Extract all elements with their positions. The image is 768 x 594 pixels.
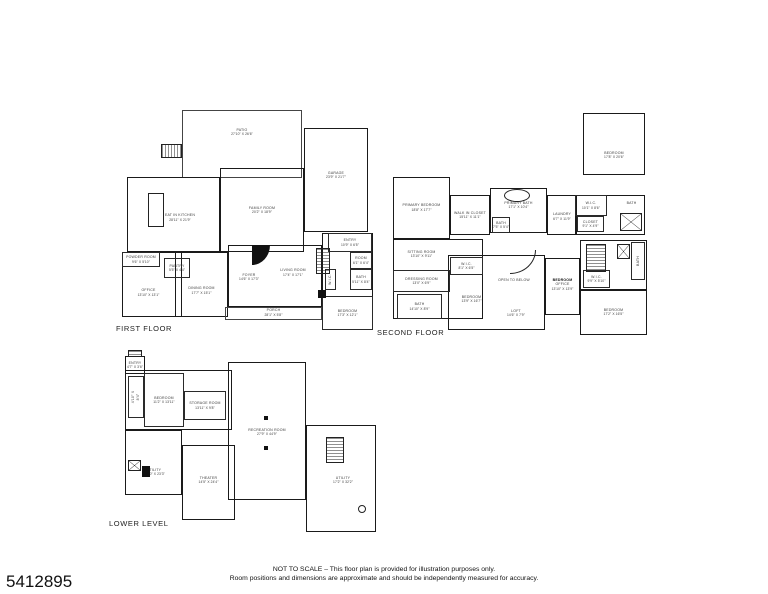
column-marker bbox=[264, 446, 268, 450]
hatch-marker bbox=[586, 244, 606, 272]
room-bath bbox=[350, 269, 372, 290]
building-outline bbox=[580, 290, 647, 335]
box-marker bbox=[148, 193, 164, 227]
building-outline bbox=[393, 177, 450, 239]
building-outline bbox=[225, 307, 322, 320]
floorplan-page: PATIO27'10" X 26'6"FAMILY ROOM20'2" X 18… bbox=[0, 0, 768, 594]
dark-marker bbox=[318, 290, 326, 298]
disclaimer: NOT TO SCALE – This floor plan is provid… bbox=[0, 565, 768, 583]
hatch-marker bbox=[128, 350, 142, 357]
floorplan-canvas: PATIO27'10" X 26'6"FAMILY ROOM20'2" X 18… bbox=[0, 0, 768, 594]
room-wic-top-right bbox=[575, 195, 607, 216]
room-powder-room bbox=[122, 252, 160, 267]
xbox-marker bbox=[620, 213, 642, 231]
room-storage-room bbox=[184, 391, 226, 420]
circle-marker bbox=[358, 505, 366, 513]
building-outline bbox=[228, 245, 322, 307]
room-wic-mid bbox=[450, 257, 483, 275]
room-bedroom bbox=[322, 296, 373, 330]
building-outline bbox=[127, 177, 220, 252]
dark-marker bbox=[142, 466, 150, 477]
building-outline bbox=[450, 195, 490, 235]
xbox-marker bbox=[617, 244, 630, 259]
room-bath-bottom-left bbox=[397, 294, 442, 319]
room-room bbox=[350, 252, 372, 269]
room-bath-wc bbox=[492, 217, 510, 233]
building-outline bbox=[182, 445, 235, 520]
building-outline bbox=[547, 195, 577, 235]
room-wic-bottom-right bbox=[583, 270, 610, 288]
room-dressing-room bbox=[393, 270, 450, 292]
room-bedroom-lower bbox=[144, 373, 184, 427]
building-outline bbox=[304, 128, 368, 232]
oval-marker bbox=[504, 189, 530, 202]
building-outline bbox=[228, 362, 306, 500]
room-closet bbox=[577, 216, 604, 232]
building-outline bbox=[545, 258, 580, 315]
lower-level-label: LOWER LEVEL bbox=[109, 519, 169, 528]
hatch-marker bbox=[316, 248, 330, 274]
disclaimer-line2: Room positions and dimensions are approx… bbox=[0, 574, 768, 583]
column-marker bbox=[264, 416, 268, 420]
xbox-marker bbox=[128, 460, 141, 471]
second-floor-label: SECOND FLOOR bbox=[377, 328, 444, 337]
building-outline bbox=[583, 113, 645, 175]
hatch-h-marker bbox=[161, 144, 182, 158]
first-floor-label: FIRST FLOOR bbox=[116, 324, 172, 333]
hatch-marker bbox=[326, 437, 344, 463]
room-stair-hall-dims bbox=[128, 376, 144, 418]
disclaimer-line1: NOT TO SCALE – This floor plan is provid… bbox=[0, 565, 768, 574]
room-pantry bbox=[164, 258, 190, 278]
room-entry bbox=[328, 233, 372, 252]
room-bath-right-vertical bbox=[631, 242, 645, 280]
building-outline bbox=[220, 168, 304, 252]
